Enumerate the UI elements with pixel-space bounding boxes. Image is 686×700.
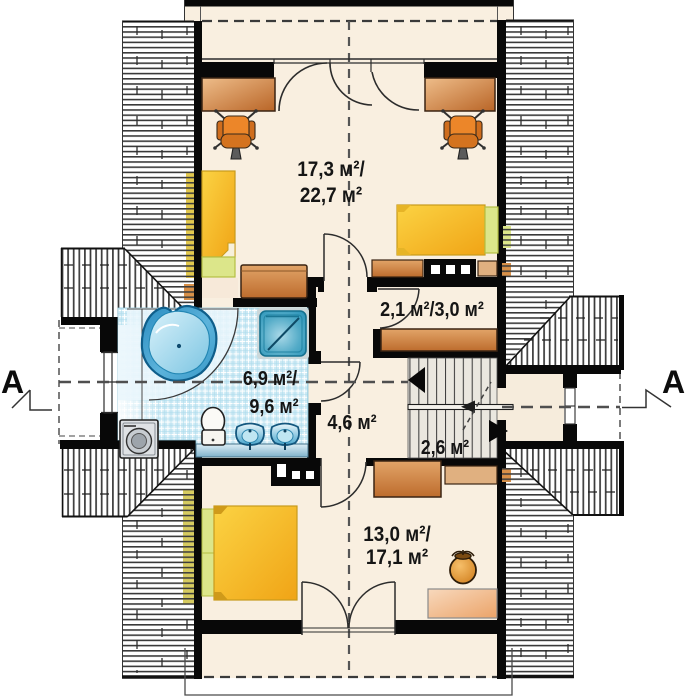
svg-text:9,6 м²: 9,6 м² — [249, 395, 299, 418]
svg-text:17,3 м²/: 17,3 м²/ — [297, 158, 365, 181]
svg-text:22,7 м²: 22,7 м² — [300, 184, 362, 207]
svg-text:6,9 м²/: 6,9 м²/ — [243, 367, 298, 390]
svg-text:4,6 м²: 4,6 м² — [327, 411, 377, 434]
svg-text:2,1 м²/3,0 м²: 2,1 м²/3,0 м² — [380, 298, 484, 321]
svg-text:17,1 м²: 17,1 м² — [366, 546, 428, 569]
svg-text:A: A — [662, 364, 685, 400]
svg-text:A: A — [1, 364, 24, 400]
svg-text:13,0 м²/: 13,0 м²/ — [363, 523, 431, 546]
svg-text:2,6 м²: 2,6 м² — [421, 437, 469, 459]
